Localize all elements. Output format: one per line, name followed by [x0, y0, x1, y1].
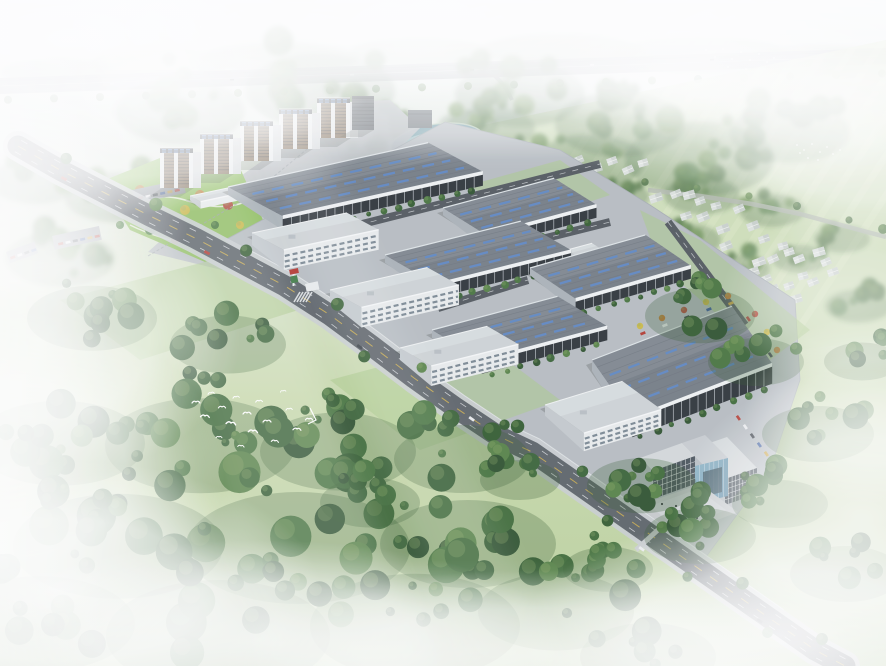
cool-tint — [0, 0, 886, 666]
fog-layer — [0, 0, 886, 666]
aerial-rendering-industrial-park — [0, 0, 886, 666]
scene-stage — [0, 0, 886, 666]
